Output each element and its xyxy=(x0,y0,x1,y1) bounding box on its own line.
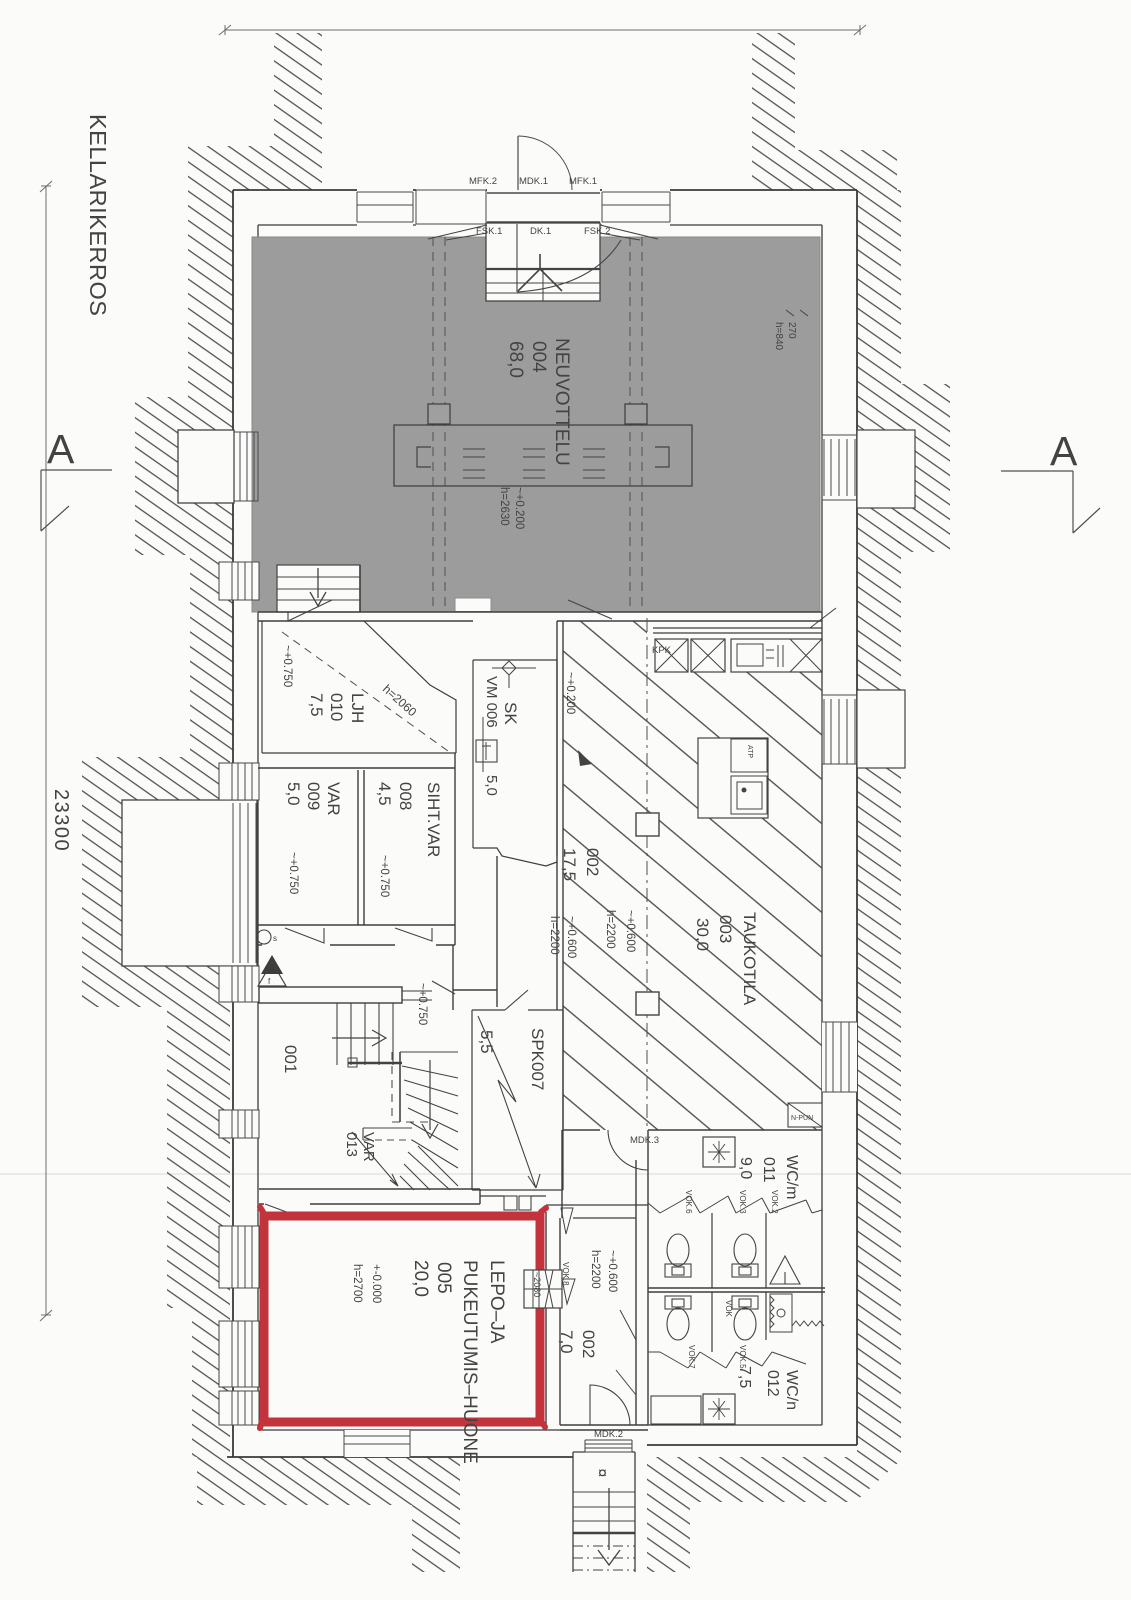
svg-text:MDK.1: MDK.1 xyxy=(519,176,548,187)
svg-text:VOK.6: VOK.6 xyxy=(684,1190,693,1214)
svg-text:011: 011 xyxy=(760,1157,777,1183)
svg-text:FSK.2: FSK.2 xyxy=(584,226,610,237)
svg-text:005: 005 xyxy=(433,1262,454,1294)
svg-text:SPK007: SPK007 xyxy=(528,1028,547,1090)
svg-text:WC/n: WC/n xyxy=(783,1370,800,1410)
svg-text:20,0: 20,0 xyxy=(410,1260,431,1297)
svg-text:MDK.2: MDK.2 xyxy=(594,1429,623,1440)
svg-text:003: 003 xyxy=(716,915,735,943)
svg-text:~2080: ~2080 xyxy=(532,1272,542,1297)
svg-text:013: 013 xyxy=(343,1132,360,1157)
svg-text:VAR: VAR xyxy=(324,782,343,816)
svg-text:h=2200: h=2200 xyxy=(604,910,616,949)
svg-text:VAR: VAR xyxy=(360,1132,377,1162)
svg-text:¤: ¤ xyxy=(598,1465,607,1482)
svg-text:FSK.1: FSK.1 xyxy=(476,226,502,237)
svg-text:VOK.2: VOK.2 xyxy=(770,1190,779,1214)
svg-text:~+0.600: ~+0.600 xyxy=(565,916,577,958)
svg-text:~+0.750: ~+0.750 xyxy=(378,855,390,897)
svg-text:h=2630: h=2630 xyxy=(498,487,510,526)
svg-text:~+0.200: ~+0.200 xyxy=(564,672,576,714)
svg-text:SK: SK xyxy=(501,702,520,725)
svg-text:LJH: LJH xyxy=(348,693,367,723)
svg-text:NEUVOTTELU: NEUVOTTELU xyxy=(551,338,572,466)
svg-text:WC/m: WC/m xyxy=(783,1155,800,1199)
svg-text:SIHT.VAR: SIHT.VAR xyxy=(424,782,443,857)
svg-text:VOK: VOK xyxy=(724,1300,733,1318)
svg-text:VOK.3: VOK.3 xyxy=(738,1190,747,1214)
svg-text:~+0.750: ~+0.750 xyxy=(416,983,428,1025)
svg-text:+-0.000: +-0.000 xyxy=(370,1264,382,1303)
svg-text:s: s xyxy=(273,934,277,943)
svg-text:5,5: 5,5 xyxy=(477,1030,496,1054)
svg-text:68,0: 68,0 xyxy=(505,341,526,378)
svg-text:A: A xyxy=(47,426,75,472)
svg-text:MFK.1: MFK.1 xyxy=(569,176,597,187)
svg-text:~+0.750: ~+0.750 xyxy=(287,852,299,894)
svg-text:5,0: 5,0 xyxy=(284,782,303,806)
svg-text:~+0.600: ~+0.600 xyxy=(624,910,636,952)
svg-text:30,0: 30,0 xyxy=(693,918,712,951)
svg-text:DK.1: DK.1 xyxy=(530,226,551,237)
svg-text:PUKEUTUMIS–HUONE: PUKEUTUMIS–HUONE xyxy=(459,1260,480,1464)
svg-text:MFK.2: MFK.2 xyxy=(469,176,497,187)
svg-text:010: 010 xyxy=(327,693,346,721)
svg-text:h=2700: h=2700 xyxy=(351,1264,363,1303)
svg-text:KELLARIKERROS: KELLARIKERROS xyxy=(85,114,111,316)
svg-text:9,0: 9,0 xyxy=(737,1157,754,1179)
svg-text:7,5: 7,5 xyxy=(307,693,326,717)
svg-text:23300: 23300 xyxy=(50,789,72,852)
svg-text:002: 002 xyxy=(579,1330,598,1358)
svg-text:009: 009 xyxy=(304,782,323,810)
svg-text:LEPO–JA: LEPO–JA xyxy=(486,1260,507,1344)
svg-text:17,5: 17,5 xyxy=(560,848,579,881)
svg-text:KPK: KPK xyxy=(652,645,672,656)
svg-text:270: 270 xyxy=(786,322,797,339)
svg-text:h=2200: h=2200 xyxy=(589,1250,601,1289)
svg-text:VOK.5: VOK.5 xyxy=(738,1345,747,1369)
svg-text:MDK.3: MDK.3 xyxy=(630,1135,659,1146)
svg-text:h=840: h=840 xyxy=(773,322,784,351)
svg-text:5,0: 5,0 xyxy=(483,775,500,796)
svg-text:7,5: 7,5 xyxy=(736,1366,753,1388)
svg-text:008: 008 xyxy=(396,782,415,810)
svg-text:7,0: 7,0 xyxy=(557,1330,576,1354)
svg-text:~+0.600: ~+0.600 xyxy=(606,1250,618,1292)
svg-text:VOK.7: VOK.7 xyxy=(687,1345,696,1369)
svg-text:012: 012 xyxy=(764,1370,781,1397)
svg-text:A: A xyxy=(1050,428,1078,474)
svg-text:004: 004 xyxy=(528,341,549,373)
svg-text:~+0.750: ~+0.750 xyxy=(281,645,293,687)
svg-text:h=2200: h=2200 xyxy=(548,916,560,955)
svg-text:N-PUN: N-PUN xyxy=(791,1115,813,1122)
svg-text:002: 002 xyxy=(583,848,602,876)
svg-text:VM 006: VM 006 xyxy=(483,676,500,728)
svg-text:ATP: ATP xyxy=(746,745,753,758)
svg-text:4,5: 4,5 xyxy=(375,782,394,806)
svg-text:TAUKOTILA: TAUKOTILA xyxy=(740,912,759,1006)
svg-text:VOK.8: VOK.8 xyxy=(561,1262,570,1286)
svg-text:~+0.200: ~+0.200 xyxy=(513,487,525,529)
svg-text:001: 001 xyxy=(281,1045,300,1073)
